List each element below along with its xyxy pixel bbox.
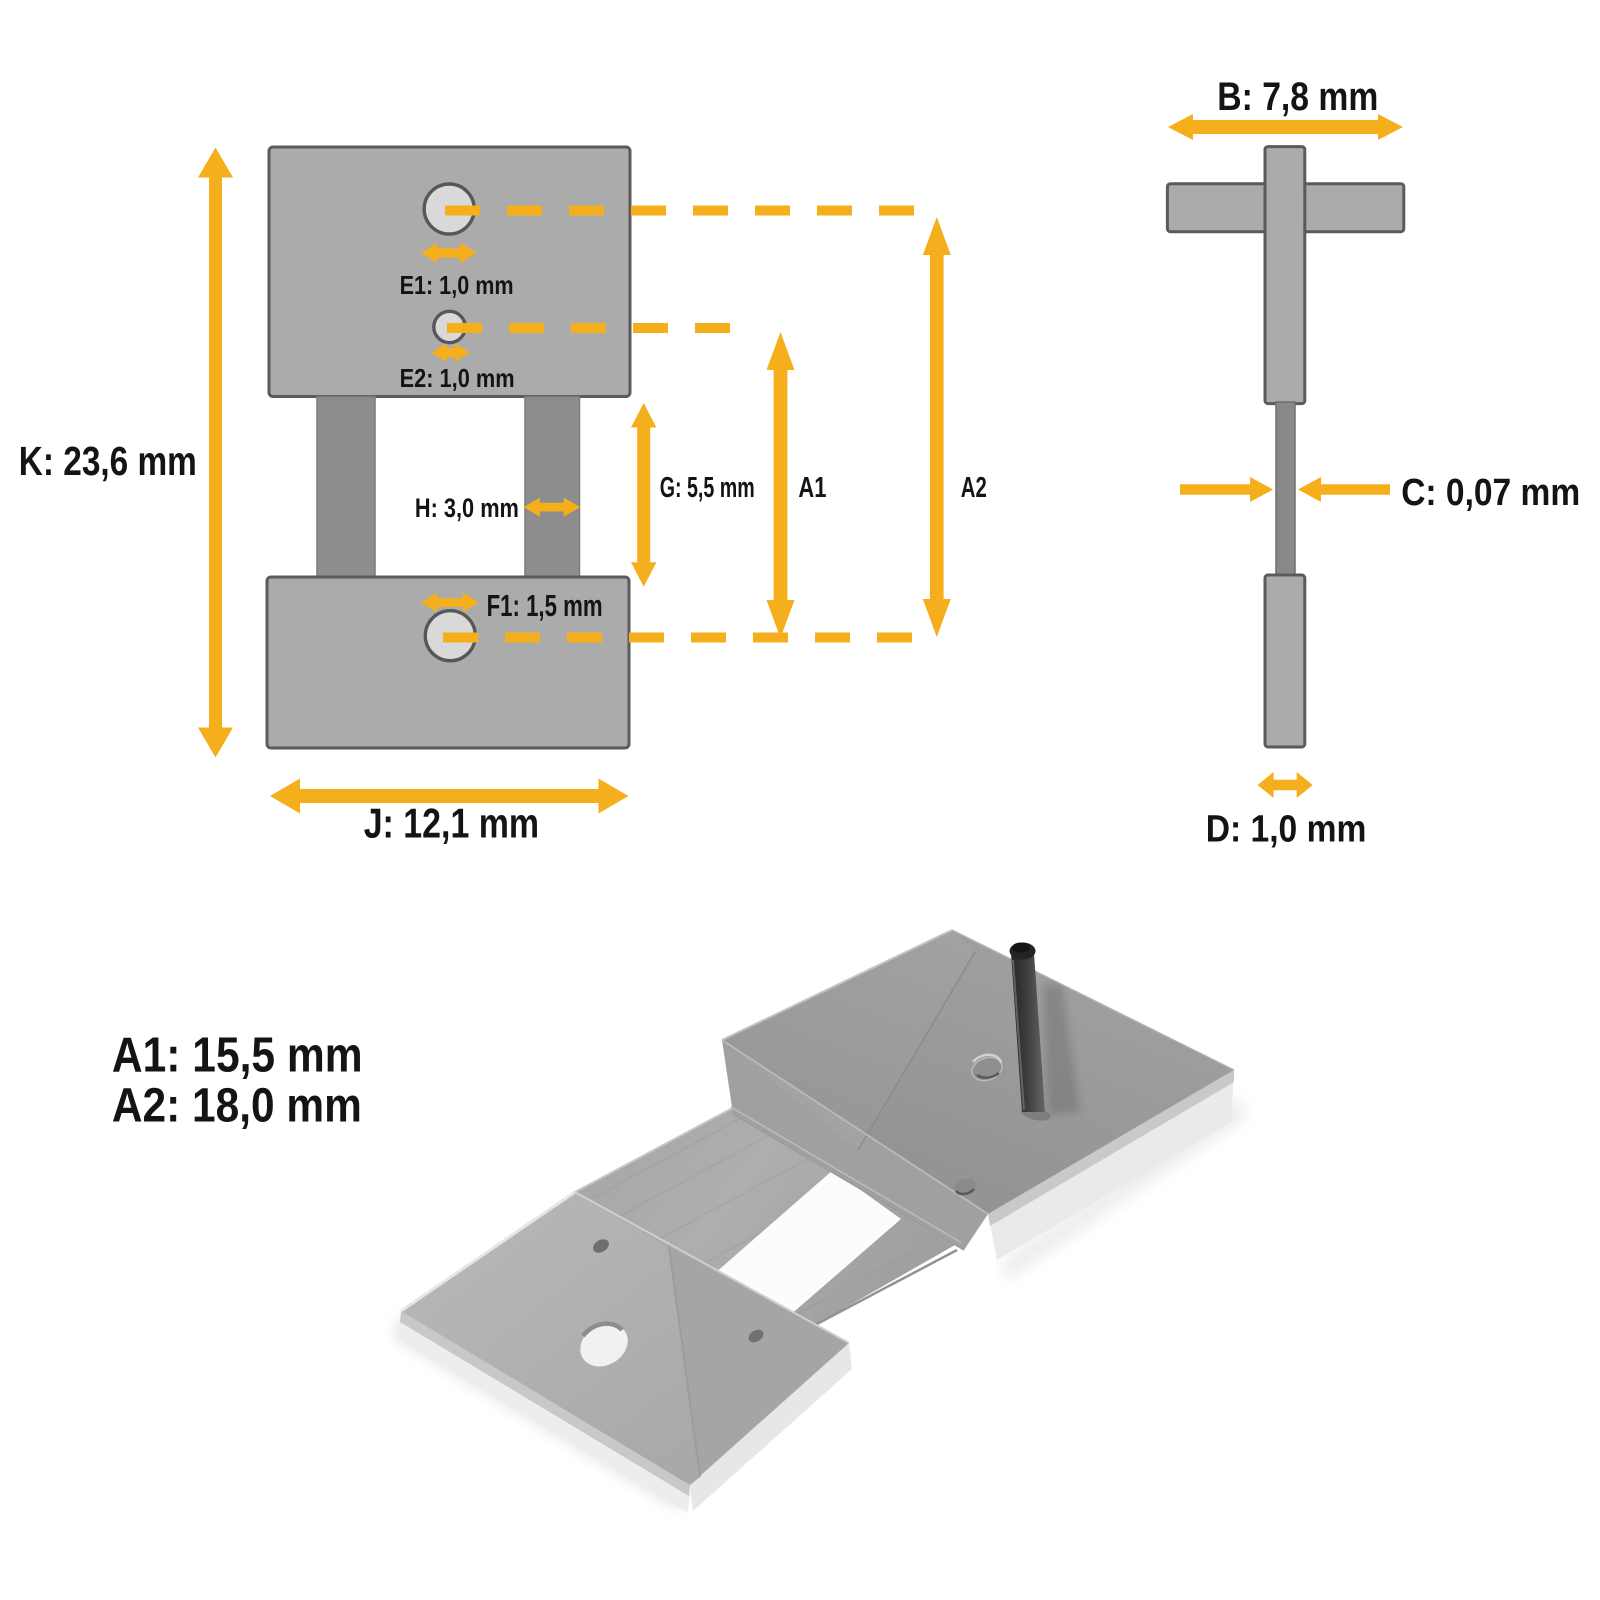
svg-text:G: 5,5 mm: G: 5,5 mm bbox=[660, 472, 755, 504]
svg-text:A1: 15,5 mm: A1: 15,5 mm bbox=[112, 1029, 363, 1083]
svg-text:E2: 1,0 mm: E2: 1,0 mm bbox=[400, 363, 515, 393]
svg-text:E1: 1,0 mm: E1: 1,0 mm bbox=[400, 270, 514, 300]
svg-text:H: 3,0 mm: H: 3,0 mm bbox=[415, 493, 519, 523]
svg-text:D: 1,0 mm: D: 1,0 mm bbox=[1206, 808, 1367, 851]
svg-text:C: 0,07 mm: C: 0,07 mm bbox=[1401, 471, 1580, 514]
svg-text:A1: A1 bbox=[798, 472, 826, 504]
svg-text:F1: 1,5 mm: F1: 1,5 mm bbox=[487, 588, 603, 623]
svg-text:B: 7,8 mm: B: 7,8 mm bbox=[1217, 75, 1378, 119]
svg-text:K: 23,6 mm: K: 23,6 mm bbox=[19, 438, 197, 484]
svg-text:A2: 18,0 mm: A2: 18,0 mm bbox=[112, 1080, 362, 1133]
svg-text:A2: A2 bbox=[961, 472, 987, 504]
svg-text:J: 12,1 mm: J: 12,1 mm bbox=[364, 800, 539, 847]
